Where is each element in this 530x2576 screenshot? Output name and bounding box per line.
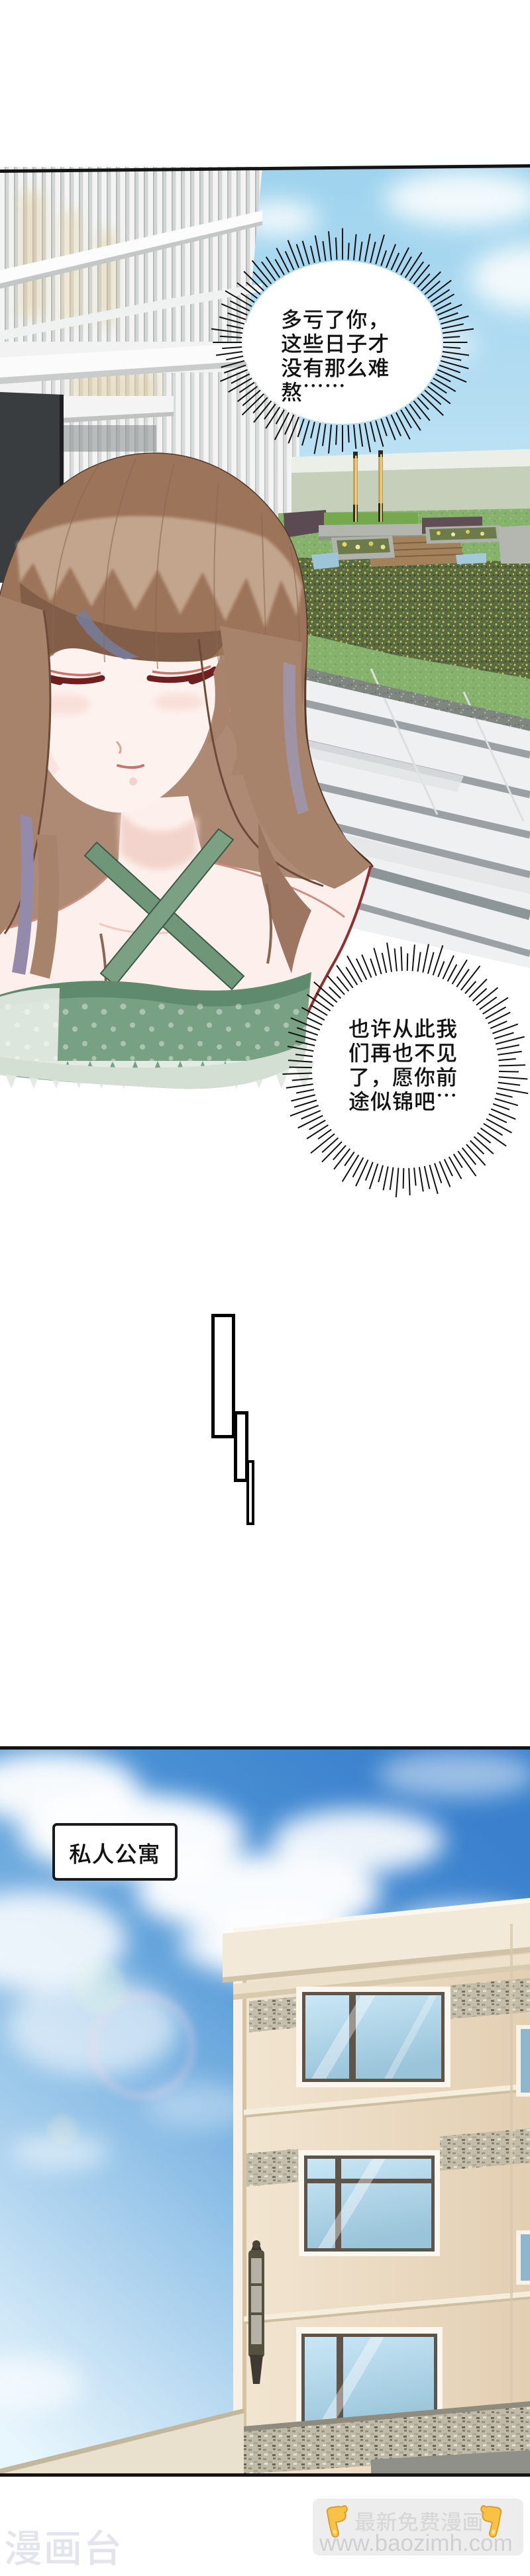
svg-text:www.baozimh.com: www.baozimh.com xyxy=(319,2530,513,2556)
